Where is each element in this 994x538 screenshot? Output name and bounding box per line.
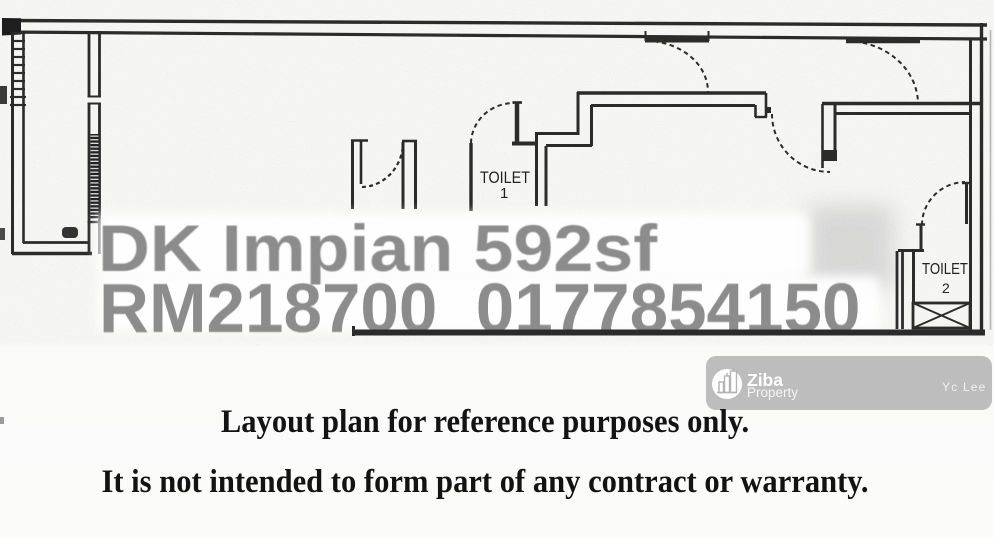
svg-text:Property: Property <box>747 385 798 400</box>
svg-text:Yc Lee: Yc Lee <box>942 380 987 394</box>
